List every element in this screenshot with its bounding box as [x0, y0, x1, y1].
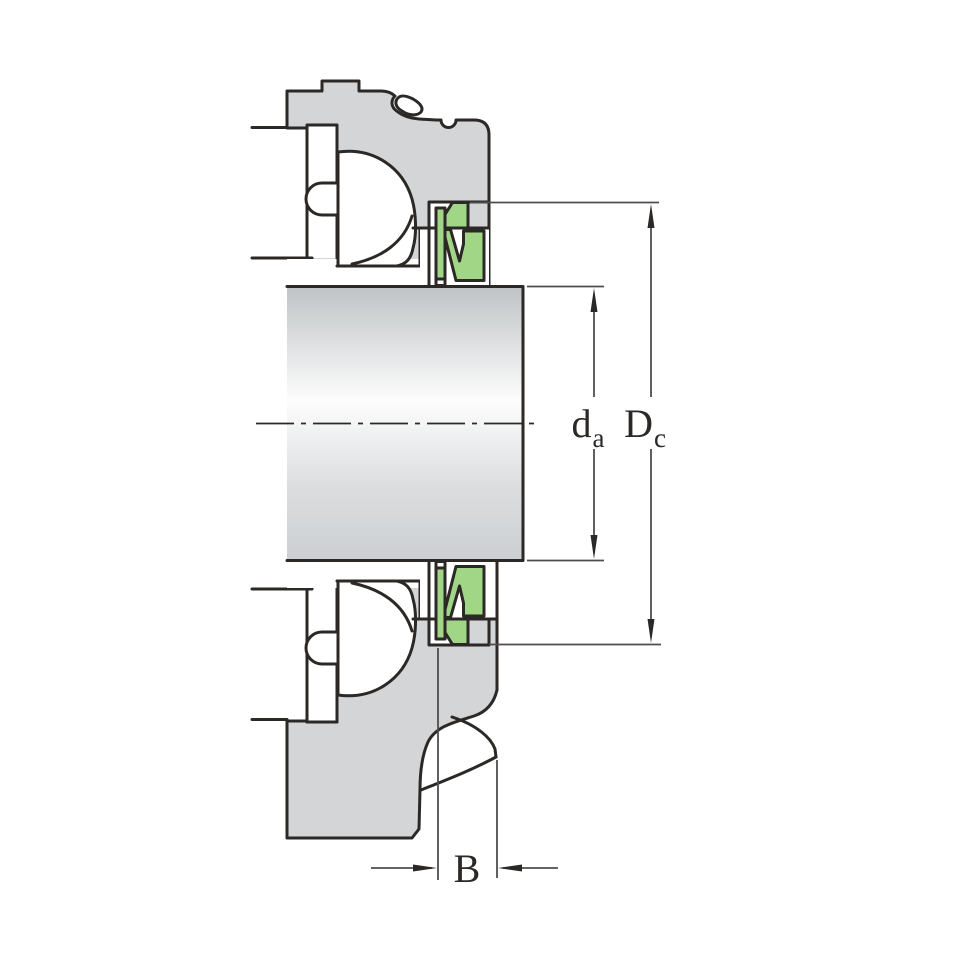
housing-step-top: [468, 202, 489, 228]
seal-body-bottom: [445, 619, 468, 645]
flinger-foot-bottom: [436, 562, 445, 569]
cage-pocket-bottom: [306, 632, 337, 664]
flinger-top: [436, 208, 445, 279]
bearing-cross-section-drawing: da Dc B: [0, 0, 960, 960]
seal-body-top: [445, 203, 468, 229]
shaft: [256, 287, 538, 561]
flinger-foot-top: [436, 279, 445, 286]
cage-pocket-top: [306, 183, 337, 215]
flinger-bottom: [436, 568, 445, 639]
b-label: B: [454, 846, 481, 891]
housing-step-bottom: [468, 619, 489, 645]
